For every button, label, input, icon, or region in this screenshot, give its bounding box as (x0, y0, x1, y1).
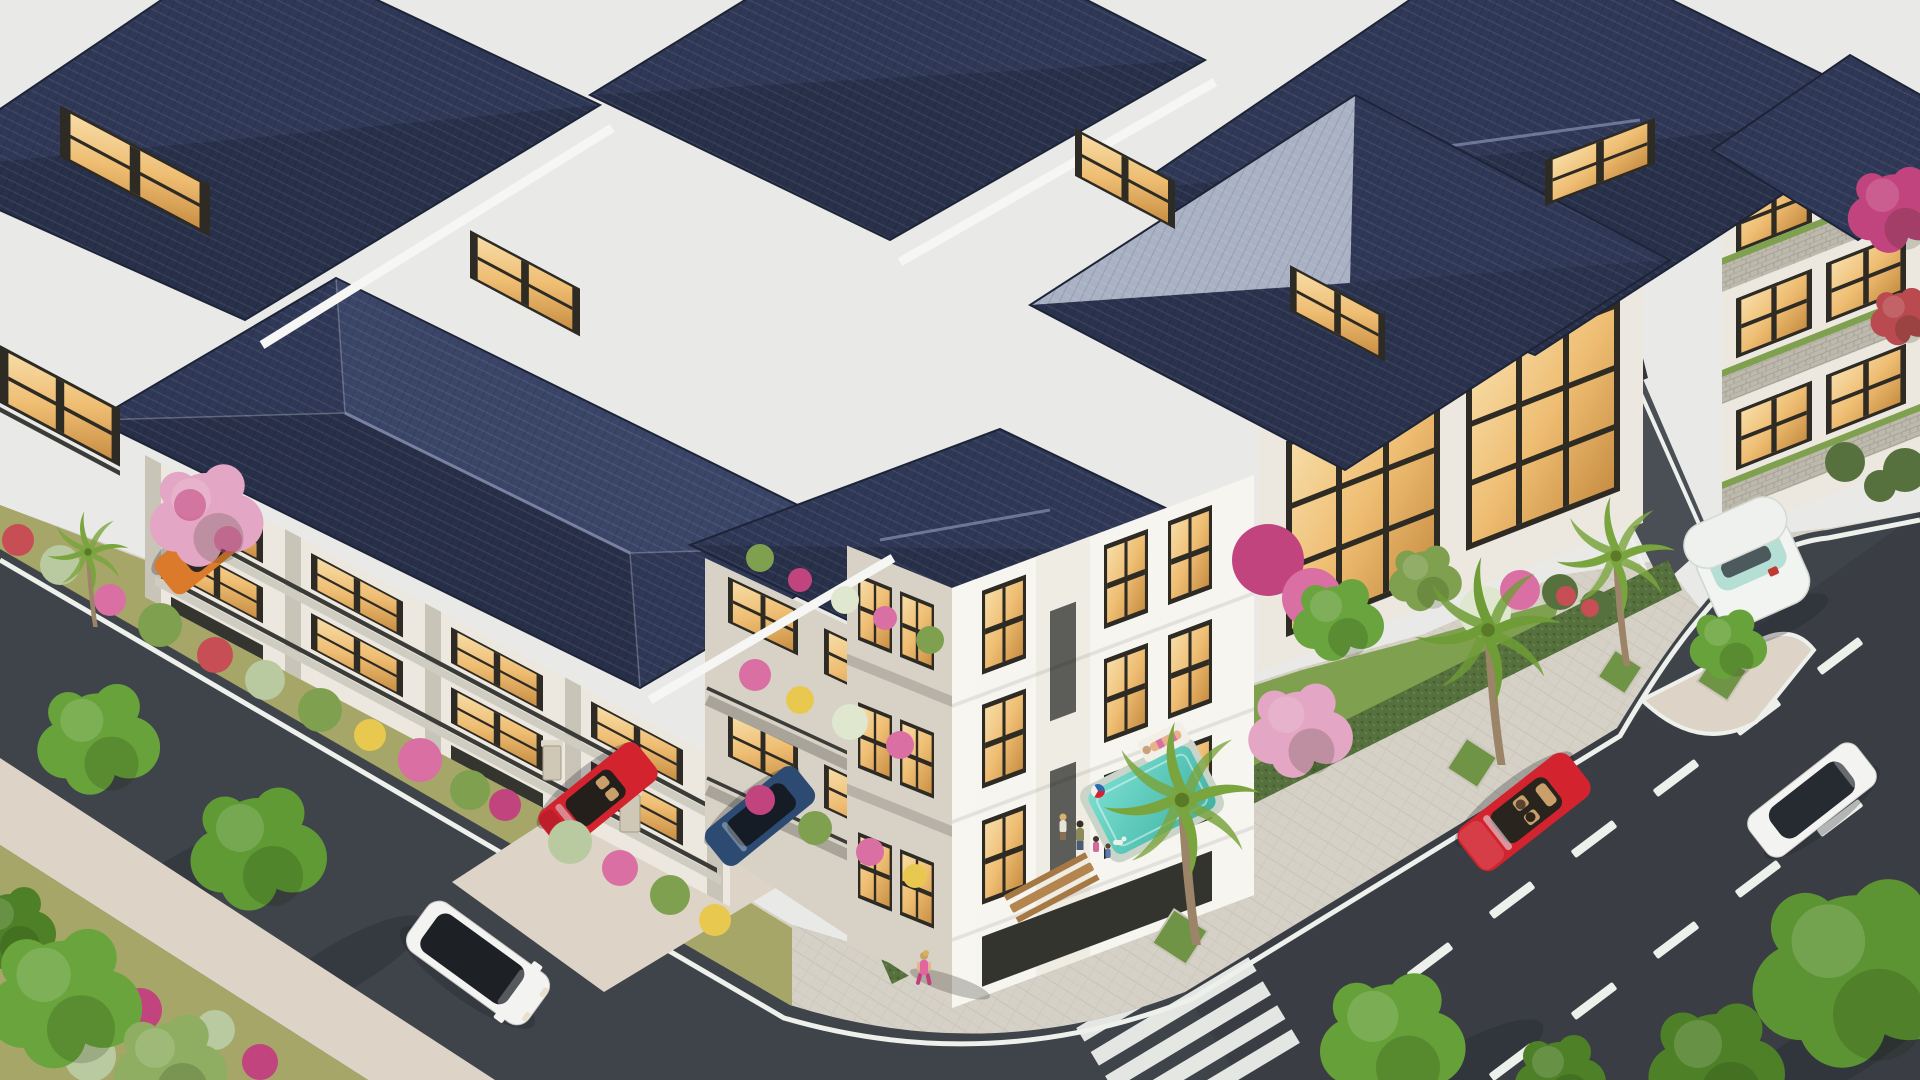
aerial-villa-render (0, 0, 1920, 1080)
render-viewport (0, 0, 1920, 1080)
gate-pillar (541, 740, 563, 780)
beach-ball (1091, 784, 1105, 798)
